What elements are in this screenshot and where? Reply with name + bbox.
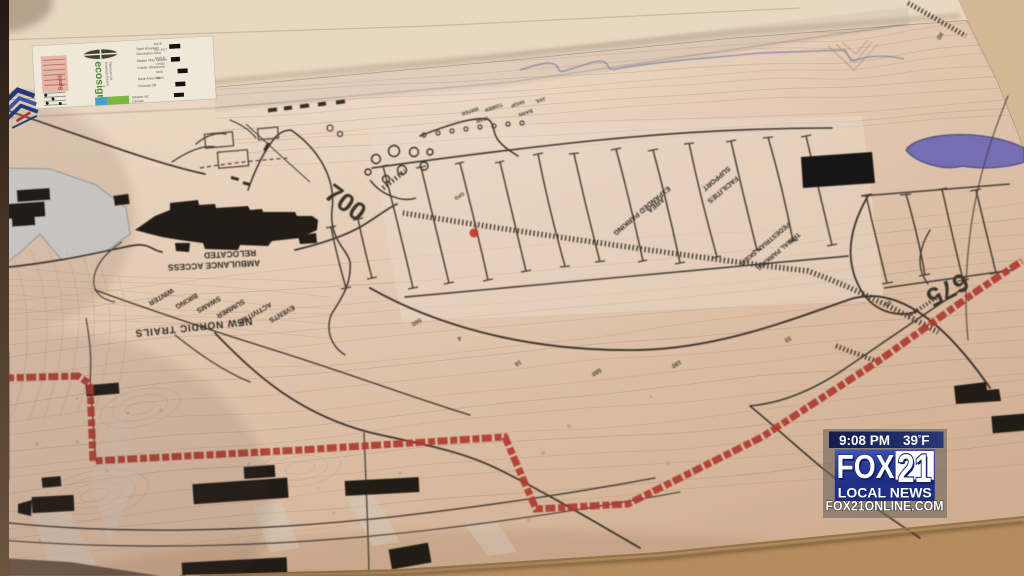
svg-text:DWG: DWG — [156, 70, 164, 74]
svg-text:2B-01: 2B-01 — [156, 76, 165, 80]
svg-text:Spirit: Spirit — [58, 75, 65, 91]
svg-text:39°F: 39°F — [903, 433, 929, 448]
svg-text:DATE: DATE — [154, 42, 162, 46]
svg-text:FOX21ONLINE.COM: FOX21ONLINE.COM — [826, 499, 944, 514]
svg-text:FOX: FOX — [837, 448, 895, 485]
svg-text:SCALE: SCALE — [155, 56, 165, 61]
svg-text:Dec 2017: Dec 2017 — [154, 47, 167, 52]
svg-text:1:2000: 1:2000 — [155, 62, 165, 67]
svg-text:Canada: Canada — [132, 99, 144, 104]
svg-text:9:08 PM: 9:08 PM — [839, 433, 890, 448]
